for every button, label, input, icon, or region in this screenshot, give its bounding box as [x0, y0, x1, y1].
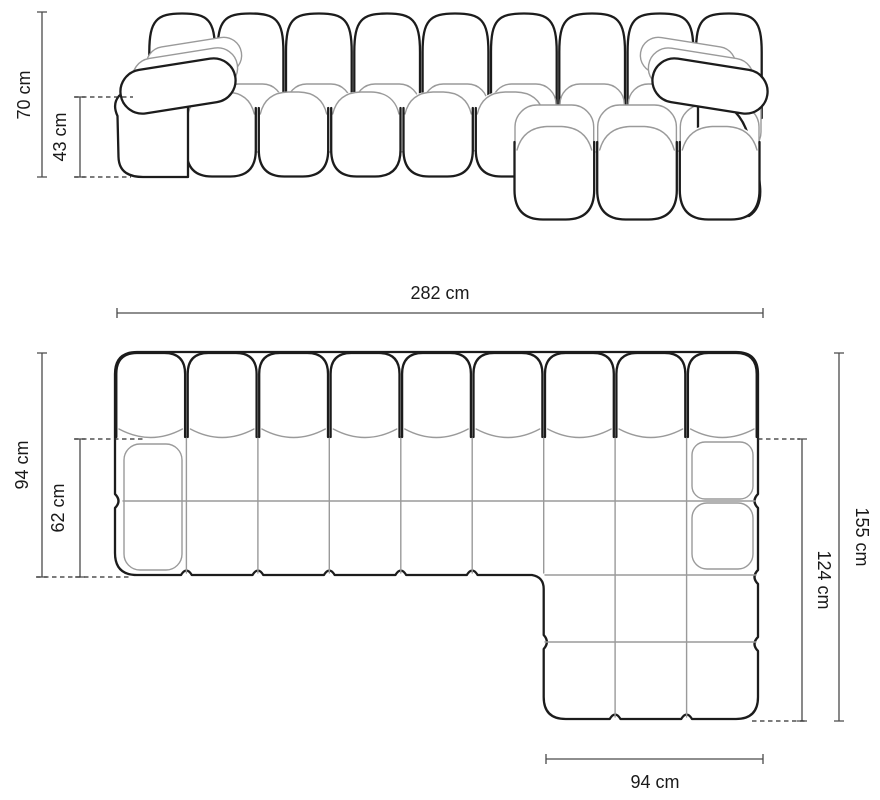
chaise-total-depth-dimension: 155 cm	[834, 353, 872, 721]
front-seat-cushions	[186, 92, 546, 177]
depth-dimension: 94 cm	[12, 353, 47, 577]
chaise-extension-dimension: 124 cm	[752, 439, 834, 721]
total-width-label: 282 cm	[410, 283, 469, 303]
chaise-total-depth-label: 155 cm	[852, 507, 872, 566]
top-view: 282 cm 94 cm 62 cm 155 cm 124 cm 94 cm	[12, 283, 872, 792]
front-seat-height-label: 43 cm	[50, 112, 70, 161]
front-chaise-cushions	[514, 126, 760, 220]
seat-depth-label: 62 cm	[48, 483, 68, 532]
total-width-dimension: 282 cm	[117, 283, 763, 318]
chaise-width-label: 94 cm	[630, 772, 679, 792]
chaise-width-dimension: 94 cm	[546, 754, 763, 792]
plan-back-cushions	[116, 353, 756, 438]
sofa-dimension-diagram: 70 cm 43 cm	[0, 0, 880, 800]
front-height-label: 70 cm	[14, 70, 34, 119]
chaise-extension-label: 124 cm	[814, 550, 834, 609]
front-height-dimension: 70 cm	[14, 12, 47, 177]
front-view: 70 cm 43 cm	[14, 12, 771, 220]
depth-label: 94 cm	[12, 440, 32, 489]
